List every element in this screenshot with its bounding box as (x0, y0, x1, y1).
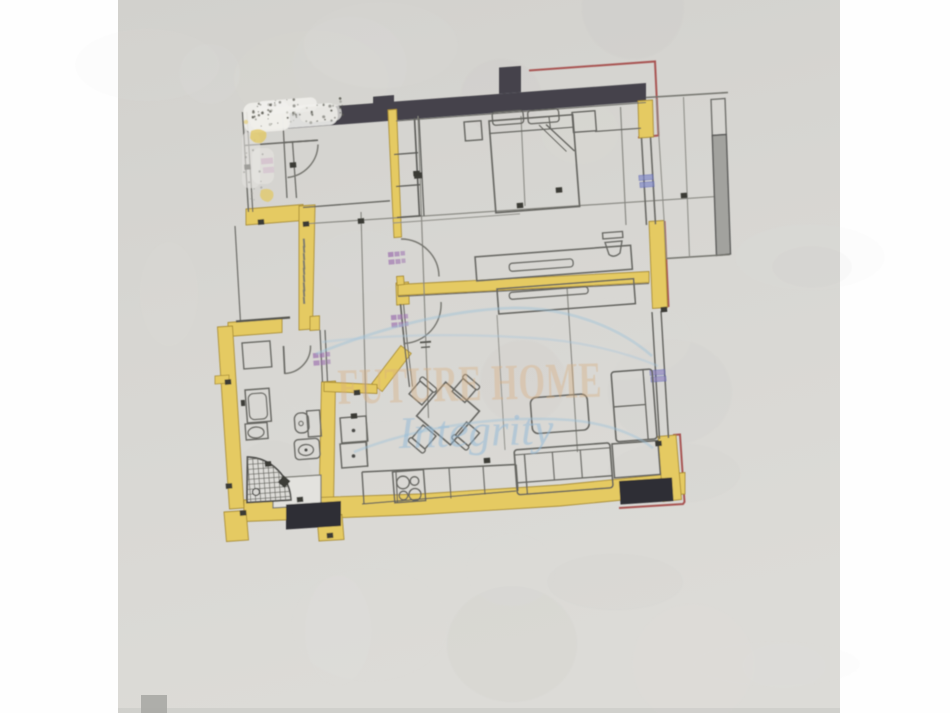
svg-text:Integrity: Integrity (397, 404, 554, 458)
